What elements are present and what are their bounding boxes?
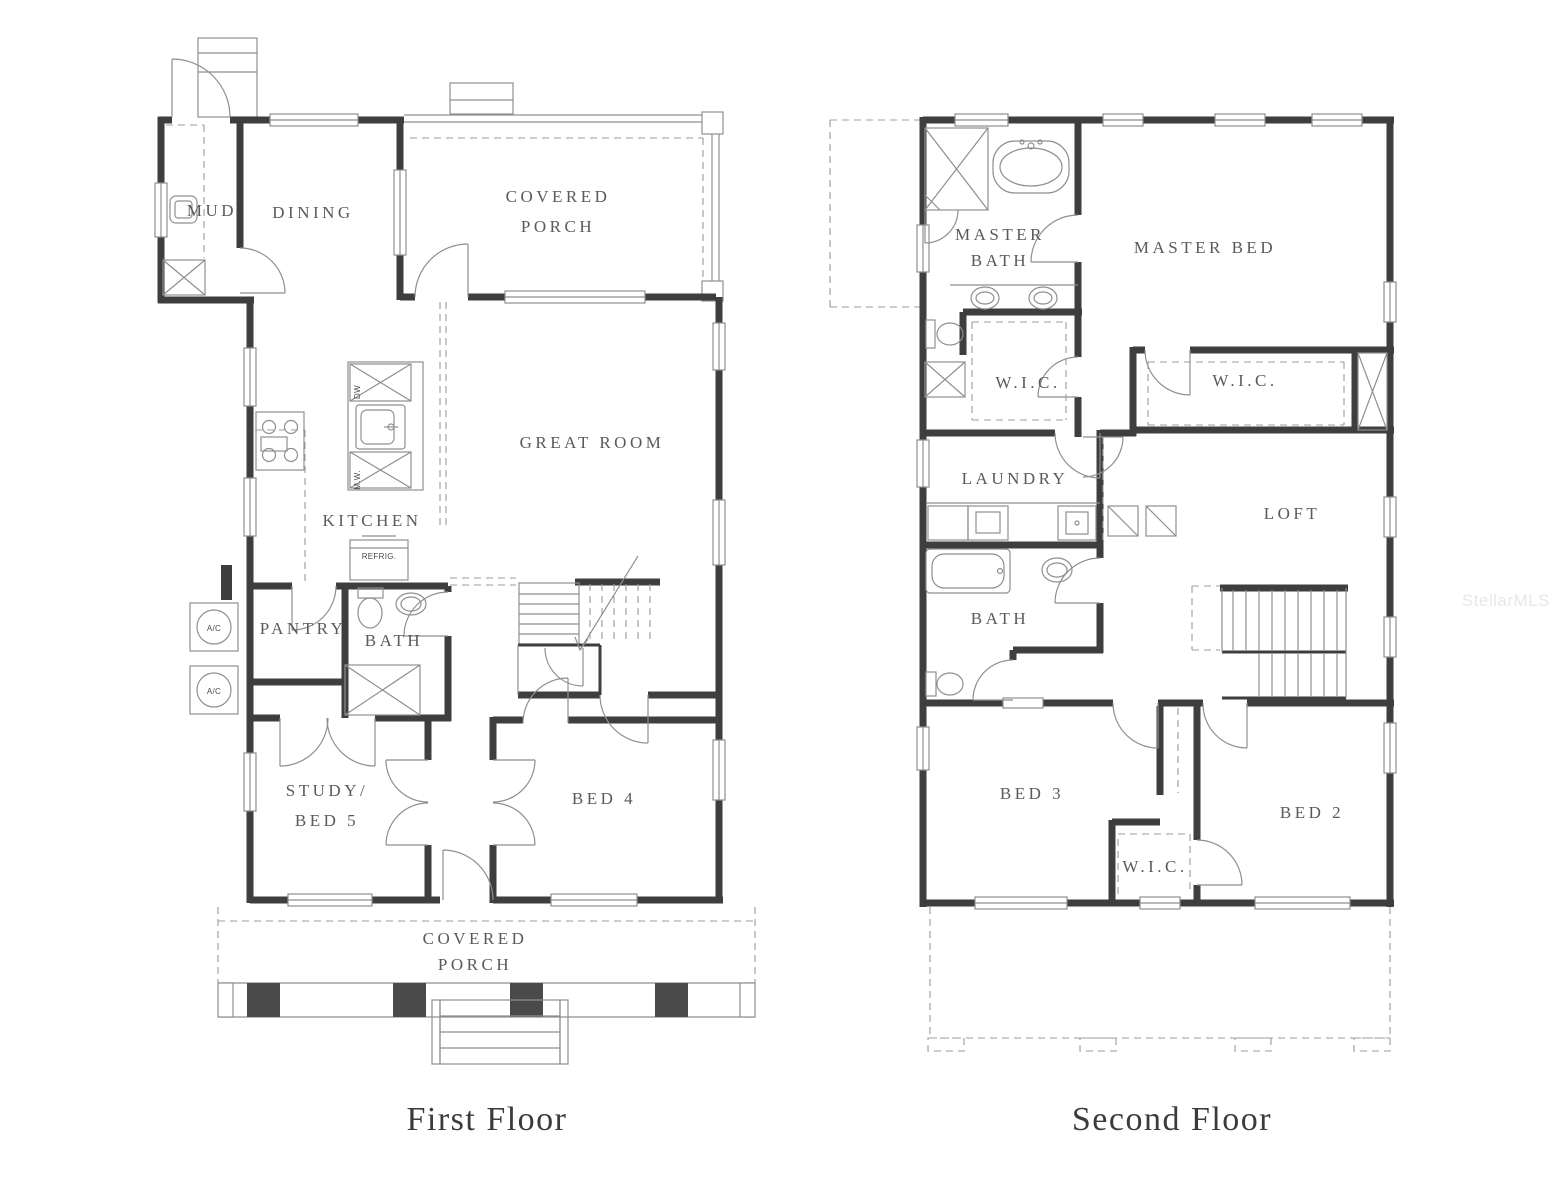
toilet-icon xyxy=(926,320,935,348)
room-label-master-bath: MASTER xyxy=(955,225,1045,244)
ac-unit: A/C xyxy=(190,603,238,651)
bed4-hall-door xyxy=(523,678,568,723)
room-label-bed3: BED 3 xyxy=(1000,784,1064,803)
attic-access xyxy=(1108,506,1176,536)
wic-right-door xyxy=(1145,350,1190,395)
dw-label: DW xyxy=(353,385,362,399)
porch-roof-below-dashed xyxy=(928,907,1390,1051)
front-door xyxy=(172,59,230,117)
roof-below-dashed xyxy=(830,120,920,307)
bed2-door xyxy=(1203,703,1247,748)
refrig-label: REFRIG. xyxy=(362,552,397,561)
water-heater-marker xyxy=(221,565,232,600)
room-label-covered-porch-top: PORCH xyxy=(521,217,595,236)
chimney xyxy=(198,38,257,117)
room-label-study: BED 5 xyxy=(295,811,359,830)
porch-door xyxy=(415,244,468,297)
bath-door xyxy=(404,592,448,636)
room-label-pantry: PANTRY xyxy=(260,619,347,638)
rear-porch-door xyxy=(443,850,493,900)
first-floor-stairs xyxy=(518,556,650,695)
floor-plan-drawing: DW M.W. REFRIG. xyxy=(0,0,1553,1200)
first-floor-title: First Floor xyxy=(406,1101,567,1138)
first-floor-bath-fixtures xyxy=(345,588,426,715)
shower-door xyxy=(925,210,958,243)
second-floor-title: Second Floor xyxy=(1072,1101,1272,1138)
ac-label: A/C xyxy=(207,624,221,633)
range-icon xyxy=(256,412,304,470)
bath2-door xyxy=(1055,558,1100,603)
porch-pillar xyxy=(247,983,280,1017)
floor-plan-sheet: DW M.W. REFRIG. xyxy=(0,0,1553,1200)
room-label-bed2: BED 2 xyxy=(1280,803,1344,822)
room-label-master-bath: BATH xyxy=(971,251,1029,270)
kitchen-island: DW M.W. xyxy=(348,362,423,490)
ac-unit: A/C xyxy=(190,666,238,714)
room-label-mud: MUD xyxy=(187,201,237,220)
room-label-bed4: BED 4 xyxy=(572,789,636,808)
room-label-kitchen: KITCHEN xyxy=(322,511,421,530)
room-label-master-bed: MASTER BED xyxy=(1134,238,1276,257)
laundry-sink-icon xyxy=(1058,506,1096,540)
bed4-double-door xyxy=(493,760,535,845)
stair-closet-door xyxy=(545,648,583,686)
toilet-icon xyxy=(926,672,936,696)
second-floor-stairs xyxy=(1192,586,1346,698)
sink-icon xyxy=(1029,287,1057,309)
porch-post xyxy=(702,112,723,134)
stellar-mls-watermark: StellarMLS xyxy=(1462,591,1550,610)
room-label-bath: BATH xyxy=(365,631,423,650)
toilet-room-door xyxy=(973,660,1013,700)
top-stoop xyxy=(450,83,513,114)
washer-icon xyxy=(928,506,968,540)
shaft-box xyxy=(1358,353,1387,430)
room-label-great-room: GREAT ROOM xyxy=(520,433,665,452)
room-label-wic-left: W.I.C. xyxy=(995,373,1060,392)
room-label-covered-porch-bottom: COVERED xyxy=(423,929,528,948)
porch-pillar xyxy=(655,983,688,1017)
second-floor-plan: MASTER BATH MASTER BED W.I.C. W.I.C. LAU… xyxy=(830,114,1396,1138)
mud-door xyxy=(240,248,285,293)
porch-post xyxy=(218,983,233,1017)
covered-porch-top-structure xyxy=(404,112,723,301)
room-label-dining: DINING xyxy=(272,203,353,222)
room-label-wic-bed2: W.I.C. xyxy=(1122,857,1187,876)
porch-post xyxy=(740,983,755,1017)
great-room-opening-dashed xyxy=(440,302,516,585)
study-double-door xyxy=(280,718,375,766)
first-floor-plan: DW M.W. REFRIG. xyxy=(155,38,755,1138)
dryer-icon xyxy=(968,506,1008,540)
refrigerator-icon: REFRIG. xyxy=(350,536,408,580)
laundry-fixtures xyxy=(926,503,1100,540)
room-label-bath2: BATH xyxy=(971,609,1029,628)
mw-label: M.W. xyxy=(353,470,362,489)
porch-pillar xyxy=(393,983,426,1017)
ac-label: A/C xyxy=(207,687,221,696)
stair-direction-arrow xyxy=(518,556,638,695)
kitchen-fixtures: DW M.W. REFRIG. xyxy=(255,362,423,583)
wic-bed2-door xyxy=(1197,840,1242,885)
study-closet-double-door xyxy=(386,760,428,845)
wic-left-dashed xyxy=(972,322,1066,420)
room-label-loft: LOFT xyxy=(1264,504,1321,523)
entry-steps xyxy=(432,1000,568,1064)
room-label-study: STUDY/ xyxy=(286,781,368,800)
room-label-laundry: LAUNDRY xyxy=(962,469,1069,488)
room-label-covered-porch-bottom: PORCH xyxy=(438,955,512,974)
bed3-door xyxy=(1113,703,1158,748)
sink-icon xyxy=(971,287,999,309)
room-label-covered-porch-top: COVERED xyxy=(506,187,611,206)
room-label-wic-right: W.I.C. xyxy=(1212,371,1277,390)
